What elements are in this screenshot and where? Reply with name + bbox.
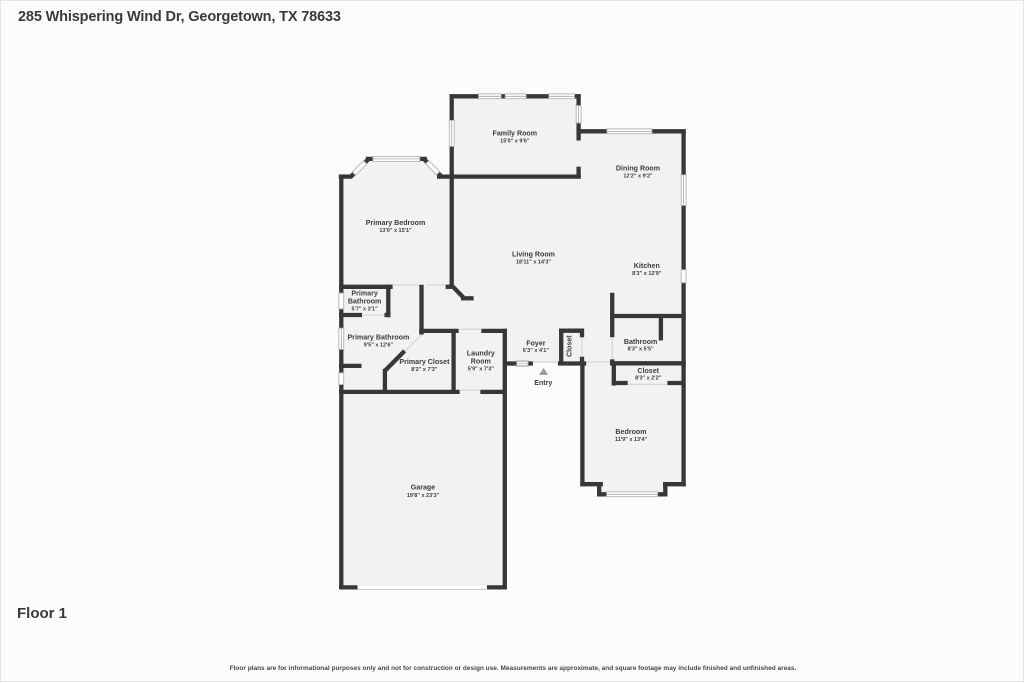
svg-text:8'3" x 12'9": 8'3" x 12'9" — [632, 271, 662, 277]
svg-text:15'0" x 9'6": 15'0" x 9'6" — [500, 139, 530, 145]
svg-text:5'9" x 7'3": 5'9" x 7'3" — [468, 366, 495, 372]
svg-text:Family Room: Family Room — [493, 130, 538, 138]
svg-text:Entry: Entry — [534, 379, 552, 387]
svg-text:5'7" x 3'1": 5'7" x 3'1" — [352, 307, 379, 313]
svg-text:Garage: Garage — [411, 484, 436, 492]
svg-text:13'0" x 15'1": 13'0" x 15'1" — [379, 228, 412, 234]
svg-text:Bedroom: Bedroom — [615, 428, 646, 436]
svg-text:12'2" x 9'2": 12'2" x 9'2" — [623, 174, 653, 180]
svg-text:Bathroom: Bathroom — [348, 297, 382, 305]
svg-text:Primary Closet: Primary Closet — [399, 358, 450, 366]
svg-text:Closet: Closet — [565, 335, 573, 357]
svg-text:8'2" x 7'3": 8'2" x 7'3" — [411, 367, 438, 373]
svg-text:8'3" x 5'5": 8'3" x 5'5" — [628, 347, 655, 353]
svg-text:9'5" x 12'6": 9'5" x 12'6" — [364, 343, 394, 349]
svg-text:8'3" x 2'2": 8'3" x 2'2" — [635, 376, 662, 382]
svg-text:Laundry: Laundry — [467, 350, 495, 358]
svg-text:Living Room: Living Room — [512, 250, 555, 258]
svg-text:Primary: Primary — [351, 289, 377, 297]
svg-text:Primary Bathroom: Primary Bathroom — [347, 333, 409, 341]
svg-text:18'11" x 14'3": 18'11" x 14'3" — [516, 260, 551, 266]
svg-text:Room: Room — [471, 357, 491, 365]
svg-text:11'9" x 13'4": 11'9" x 13'4" — [615, 437, 647, 443]
svg-text:6'3" x 4'1": 6'3" x 4'1" — [523, 348, 550, 354]
svg-text:Kitchen: Kitchen — [634, 262, 660, 270]
svg-text:Primary Bedroom: Primary Bedroom — [366, 219, 426, 227]
svg-text:Bathroom: Bathroom — [624, 338, 658, 346]
svg-text:Foyer: Foyer — [526, 339, 546, 347]
svg-text:19'8" x 23'3": 19'8" x 23'3" — [407, 493, 440, 499]
svg-text:Closet: Closet — [637, 367, 659, 375]
svg-text:Dining Room: Dining Room — [616, 164, 660, 172]
